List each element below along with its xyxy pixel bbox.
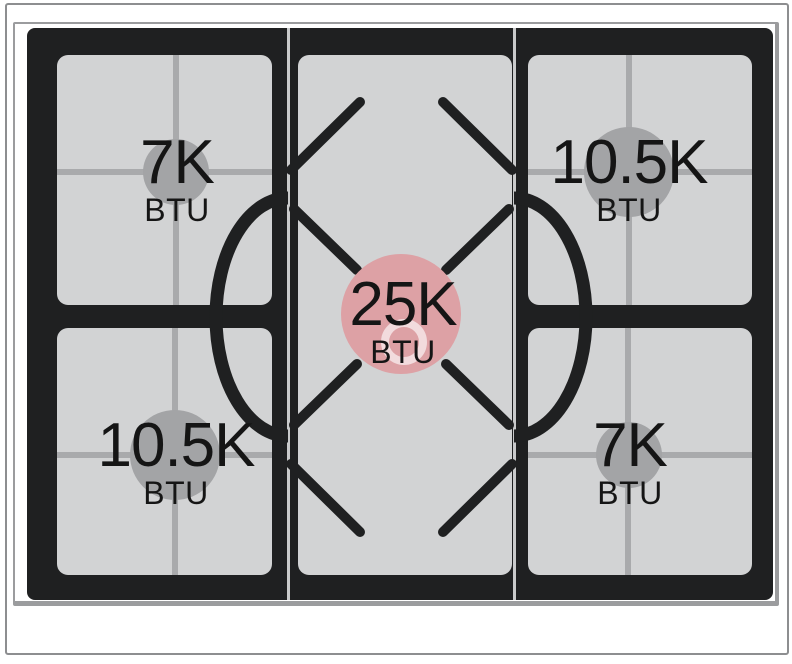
btu-value: 7K xyxy=(140,132,214,194)
btu-unit: BTU xyxy=(349,336,456,368)
cooktop-diagram: 7K BTU 10.5K BTU 25K BTU 10.5K BTU 7K BT… xyxy=(0,0,792,664)
burner-label-bottom-left: 10.5K BTU xyxy=(97,415,254,509)
btu-unit: BTU xyxy=(97,477,254,509)
btu-unit: BTU xyxy=(593,477,667,509)
btu-value: 10.5K xyxy=(550,132,707,194)
wok-ring-right-arc xyxy=(514,198,586,436)
burner-label-top-left: 7K BTU xyxy=(140,132,214,226)
burner-label-center: 25K BTU xyxy=(349,274,456,368)
btu-value: 7K xyxy=(593,415,667,477)
btu-unit: BTU xyxy=(140,194,214,226)
burner-label-bottom-right: 7K BTU xyxy=(593,415,667,509)
wok-ring-left-arc xyxy=(216,198,288,436)
burner-label-top-right: 10.5K BTU xyxy=(550,132,707,226)
btu-value: 25K xyxy=(349,274,456,336)
btu-value: 10.5K xyxy=(97,415,254,477)
btu-unit: BTU xyxy=(550,194,707,226)
